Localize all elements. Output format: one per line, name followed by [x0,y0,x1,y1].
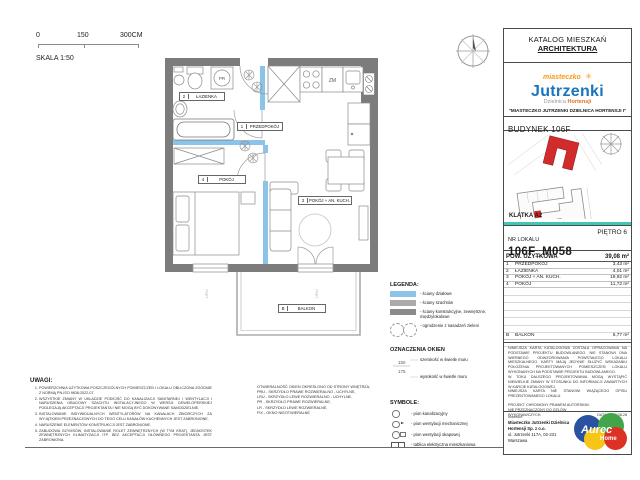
uwagi-list: POWIERZCHNIA UŻYTKOWA POSZCZEGÓLNYCH POM… [30,386,212,443]
empty-row [504,288,631,296]
scale-label: SKALA 1:50 [36,55,74,62]
site-plan [504,131,631,219]
area-table-header: POW. UŻYTKOWA 39,08 m² [504,253,631,262]
sofa-icon [270,182,298,251]
legend-item: - ogrodzenie z nasadzeń zieleni [390,323,502,337]
aurec-home-logo: Aurec Home [574,413,628,451]
uwagi-item: NARUSZENIE ELEMENTÓW KONSTRUKCJI JEST ZA… [39,423,212,428]
title-block: KATALOG MIESZKAŃ ARCHITEKTURA miasteczko… [503,28,632,455]
empty-row [504,326,631,334]
klatka-label: KLATKA A2 [509,213,542,219]
scale-bar-line [38,44,138,45]
scale-tickmark [138,44,139,48]
dining-set-icon [326,150,364,191]
empty-row [504,296,631,304]
symbol-item: - pion kanalizacyjny [390,410,505,417]
window-mark: URU [315,280,319,298]
stove-icon [300,67,322,92]
window-mark: URU [205,280,209,298]
disclaimer-paragraph: NINIEJSZA KARTA NIE STANOWI WIĄŻĄCEGO OP… [508,389,627,399]
legend-swatch-icon [390,291,416,297]
rug-icon [299,214,331,246]
brand-top: miasteczko [543,74,581,81]
uwagi-item: INSTALOWANIE INDYWIDUALNYCH WENTYLATORÓW… [39,412,212,422]
project-quote: "MIASTECZKO JUTRZENKI DZIELNICA HORTENSJ… [504,108,631,113]
scale-tick-150: 150 [77,32,89,39]
window-height-value: 175 [398,369,406,374]
bed-icon [173,192,255,255]
water-heater-icon [174,67,184,85]
investor-address: ul. Jutrzenki 117A, 02-231 Warszawa [508,432,576,444]
room-label-hall: 1 PRZEDPOKÓJ [237,122,283,131]
uwagi-item: POWIERZCHNIA UŻYTKOWA POSZCZEGÓLNYCH POM… [39,386,212,396]
window-dim-diagram: 150 175 [390,355,420,385]
legend-item: - ściany szachtów [390,300,502,306]
fridge-cabinet-icons [348,103,370,145]
teal-divider [504,222,631,225]
panel-disclaimer: NINIEJSZA KARTA KATALOGOWA ZOSTAŁA OPRAC… [504,343,631,412]
area-table-rows: 1 PRZEDPOKÓJ 3,43 m² 2 ŁAZIENKA 4,01 m² … [504,262,631,288]
catalog-title: KATALOG MIESZKAŃ [504,35,631,44]
symbols-title: SYMBOLE: [390,400,505,406]
scale-tickmark [38,44,39,48]
panel-brand: miasteczko ✳ Jutrzenki Dzielnica Hortens… [504,63,631,117]
legend-swatch-icon [390,300,416,306]
legend-item: - ściany konstrukcyjne, zewnętrzne, międ… [390,309,502,320]
scale-tickmark [84,44,85,48]
uwagi-item: WSZYSTKIE ZMIANY W UKŁADZIE PODEJŚĆ DO K… [39,397,212,411]
uwagi-item: ZABUDOWA GZYMSÓW, INSTALOWANIE ROLET ZEW… [39,429,212,443]
dishwasher-label: ZM [329,78,336,84]
legend-swatch-icon [390,309,416,315]
building-highlight [543,136,579,170]
scale-tick-300: 300CM [120,32,143,39]
aurec-wordmark: Aurec [581,424,612,436]
catalog-subtitle: ARCHITEKTURA [504,44,631,53]
symbol-items: - pion kanalizacyjny - pion wentylacji m… [390,410,505,449]
toilet-icon [187,67,203,89]
window-markings-section: OZNACZENIA OKIEN 150 175 szerokość w świ… [390,347,502,397]
bathroom-sink-icon [173,101,187,117]
panel-header: KATALOG MIESZKAŃ ARCHITEKTURA [504,29,631,63]
disclaimer-paragraph: NINIEJSZA KARTA KATALOGOWA ZOSTAŁA OPRAC… [508,346,627,375]
uwagi-section: UWAGI: POWIERZCHNIA UŻYTKOWA POSZCZEGÓLN… [30,378,212,444]
symbol-item: - pion wentylacji mechanicznej [390,420,505,427]
symbol-icon [390,431,408,438]
room-label-bathroom: 2 ŁAZIENKA [179,92,225,101]
symbol-icon [390,420,408,427]
vent-riser-icons [240,70,262,163]
scale-bar: 0 150 300CM SKALA 1:50 [30,30,180,66]
brand-name: Jutrzenki [504,84,631,99]
window-width-value: 150 [398,360,406,365]
north-arrow-icon [455,33,491,69]
window-opening-note: OTWIERALNOŚĆ OKIEN OKREŚLONO OD STRONY W… [257,385,397,416]
sun-icon: ✳ [585,72,592,81]
panel-investor: Inwestor: Miasteczko Jutrzenki Dzielnica… [504,412,631,458]
floor-plan: PR ZM [165,58,378,338]
bathtub-icon [173,119,234,140]
room-label-living: 3 POKÓJ + AN. KUCH. [298,196,352,205]
legend-swatch-icon [390,323,416,337]
site-compass-icon [600,133,622,155]
empty-row [504,303,631,311]
panel-siteplan: KLATKA A2 [504,131,631,226]
note-line: FIX - OKNO NIEOTWIERALNE [257,411,397,416]
kitchen-sink-icon [343,67,363,92]
legend-title: LEGENDA: [390,282,502,288]
sheet-bottom-border [25,447,503,448]
brand-subtitle: Dzielnica Hortensji [504,99,631,105]
empty-row [504,311,631,319]
corner-vent-shaft [364,73,375,95]
tv-bench-icon [359,206,368,240]
symbol-icon [390,410,408,417]
window-height-label: wysokość w świetle muru [420,374,467,379]
disclaimer-paragraph: W TOKU DALSZEGO PROJEKTOWANIA MOGĄ WYSTĄ… [508,375,627,389]
washer-label: PR [219,76,226,81]
wardrobe-icon [174,148,224,164]
window-width-label: szerokość w świetle muru [420,357,468,362]
floor-label: PIĘTRO 6 [597,229,627,236]
room-label-balcony: B BALKON [278,304,326,313]
shaft-hatch [268,66,300,102]
panel-unit: NR LOKALU PIĘTRO 6 106F_M058 [504,226,631,251]
unit-number-label: NR LOKALU [508,237,539,243]
symbols-section: SYMBOLE: - pion kanalizacyjny - pion wen… [390,400,505,448]
uwagi-title: UWAGI: [30,378,212,384]
window-markings-title: OZNACZENIA OKIEN [390,347,502,353]
panel-building: BUDYNEK 106F [504,117,631,131]
catalog-sheet: { "scale": {"ticks": ["0", "150", "300CM… [0,0,640,480]
legend-items: - ściany działowe - ściany szachtów - śc… [390,291,502,337]
legend-item: - ściany działowe [390,291,502,297]
aurec-home-label: Home [600,436,617,442]
legend-section: LEGENDA: - ściany działowe - ściany szac… [390,282,502,337]
investor-name: Miasteczko Jutrzenki Dzielnica Hortensji… [508,420,576,432]
symbol-item: - pion wentylacji okapowej [390,431,505,438]
disclaimer-paragraphs: NINIEJSZA KARTA KATALOGOWA ZOSTAŁA OPRAC… [508,346,627,399]
empty-row [504,318,631,326]
room-label-bedroom: 4 POKÓJ [198,175,246,184]
scale-tick-0: 0 [36,32,40,39]
panel-area-table: POW. UŻYTKOWA 39,08 m² 1 PRZEDPOKÓJ 3,43… [504,251,631,343]
